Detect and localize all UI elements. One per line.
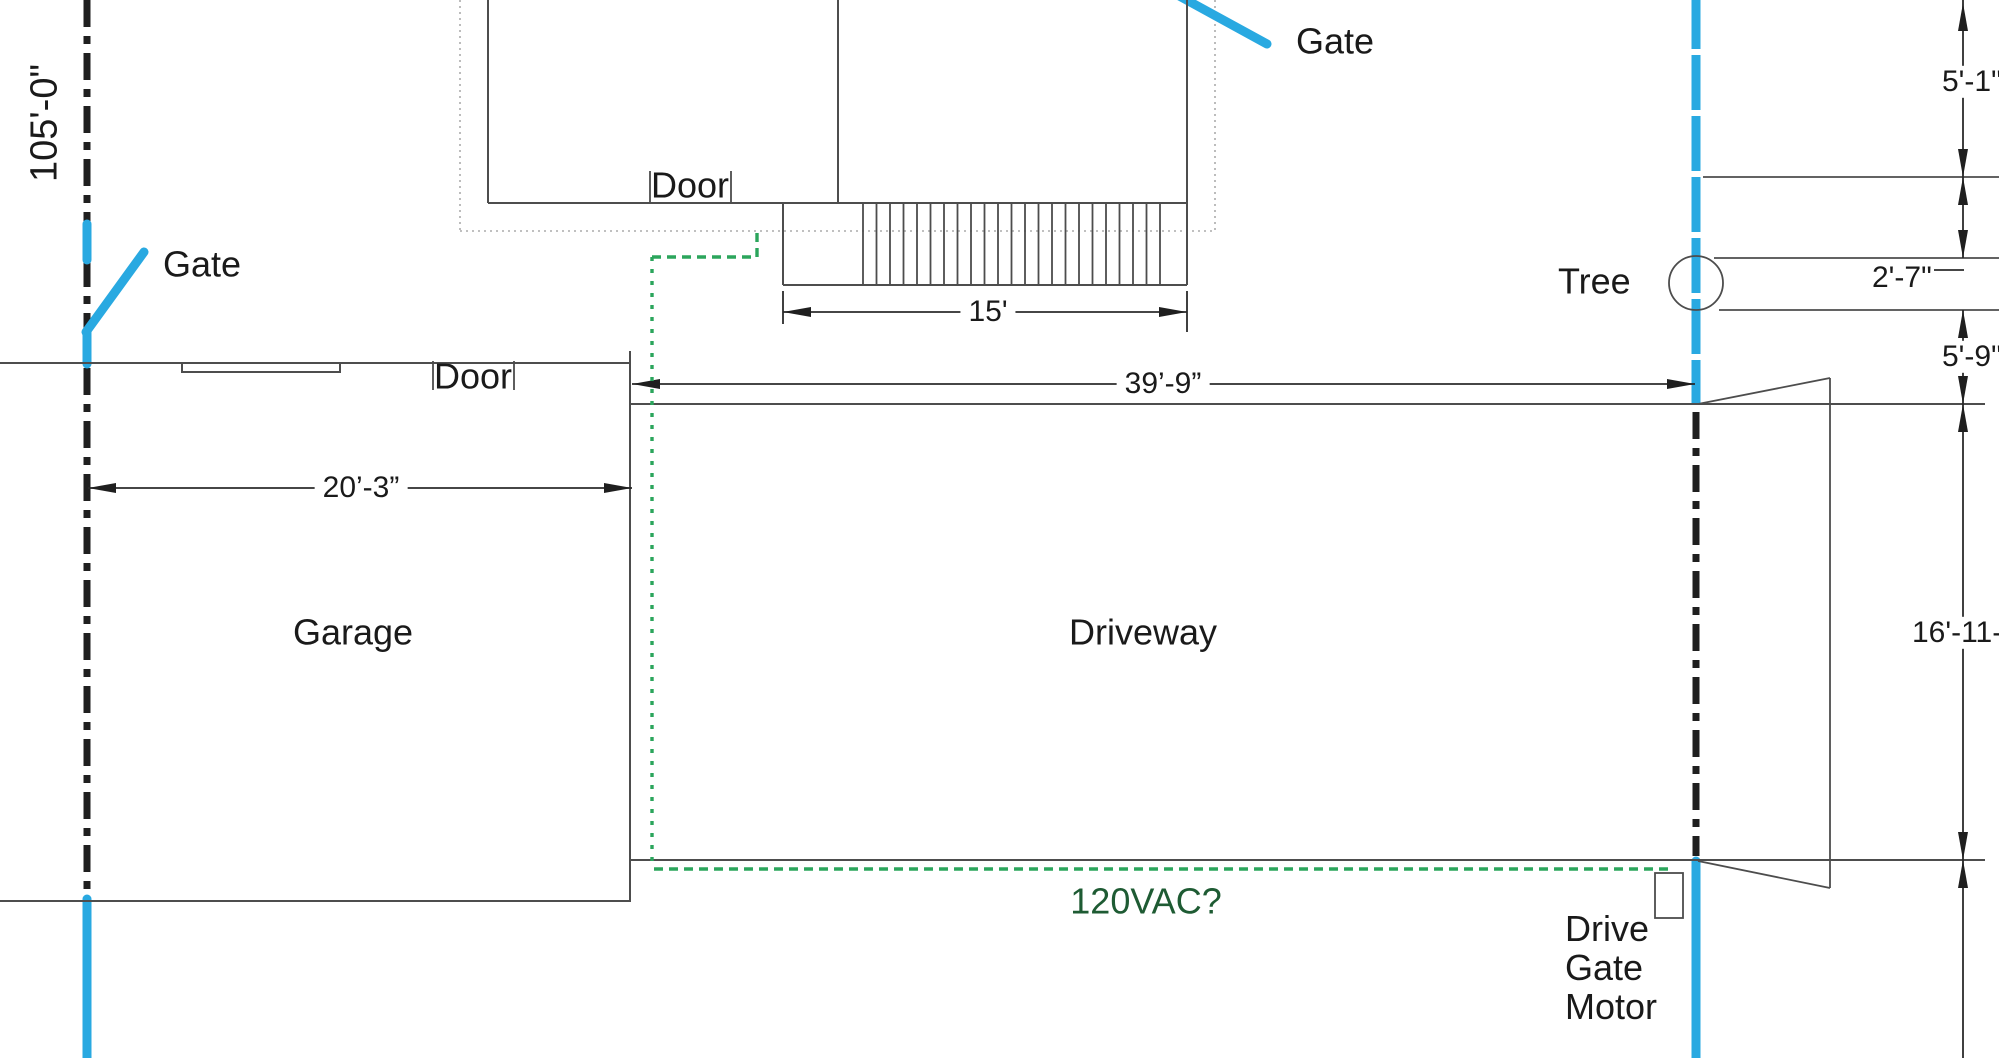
dim-arrow-404-up <box>1958 404 1968 432</box>
garage-label: Garage <box>293 614 413 653</box>
dim-arrow-404-down <box>1958 376 1968 404</box>
dim-driveway-width-label: 16'-11-1/2" <box>1904 617 1999 649</box>
dim-5-1-label: 5'-1" <box>1934 66 1999 98</box>
dim-20-arrow-right <box>604 483 632 493</box>
dim-arrow-310-up <box>1958 310 1968 338</box>
door-label-house: Door <box>651 167 729 206</box>
drive-gate-motor-box <box>1655 873 1683 918</box>
dim-arrow-860-up <box>1958 860 1968 888</box>
dim-2-7-label: 2'-7" <box>1864 262 1940 294</box>
power-question-label: 120VAC? <box>1070 883 1221 922</box>
dim-arrow-top-up <box>1958 3 1968 31</box>
conduit-from-door <box>652 233 757 257</box>
gate-label-left: Gate <box>163 246 241 285</box>
site-plan-canvas <box>0 0 1999 1058</box>
dim-arrow-177-down <box>1958 149 1968 177</box>
dim-39-arrow-left <box>632 379 660 389</box>
tree-label: Tree <box>1558 263 1631 302</box>
dim-39-arrow-right <box>1667 379 1695 389</box>
driveway-label: Driveway <box>1069 614 1217 653</box>
gate-flare-bottom <box>1698 861 1830 888</box>
left-gate-swing-line <box>86 252 144 332</box>
dim-arrow-258-down <box>1958 230 1968 258</box>
garage-window <box>182 363 340 372</box>
site-plan: 105'-0" Gate Gate Door Door Tree Garage … <box>0 0 1999 1058</box>
dim-15-arrow-right <box>1159 307 1187 317</box>
dim-garage-width-label: 20’-3” <box>315 472 408 504</box>
dim-20-arrow-left <box>88 483 116 493</box>
drive-gate-motor-label: Drive Gate Motor <box>1565 909 1657 1026</box>
door-label-garage: Door <box>434 358 512 397</box>
gate-label-top: Gate <box>1296 23 1374 62</box>
dim-5-9-label: 5'-9" <box>1934 341 1999 373</box>
boundary-length-label: 105'-0" <box>24 64 65 182</box>
dim-arrow-177-up <box>1958 177 1968 205</box>
dim-15-arrow-left <box>783 307 811 317</box>
dim-stairs-width-label: 15' <box>960 296 1015 328</box>
gate-flare-top <box>1698 378 1830 404</box>
dim-driveway-length-label: 39’-9” <box>1117 368 1210 400</box>
dim-arrow-860-down <box>1958 832 1968 860</box>
